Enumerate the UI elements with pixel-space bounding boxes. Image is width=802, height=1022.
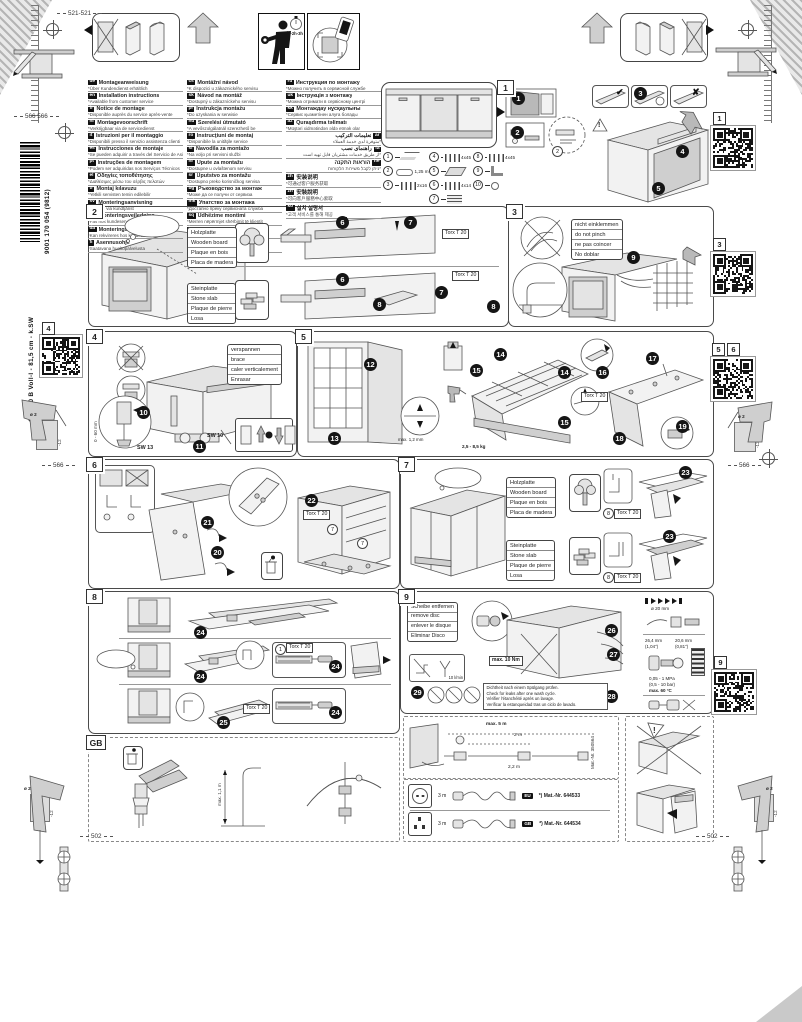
part-icon	[397, 152, 420, 163]
dim-right-mid: 566	[726, 462, 763, 469]
no-carry-by-door-illustration: !	[633, 722, 705, 778]
no-reuse-crossed-icons	[427, 685, 479, 705]
p9-drain-clamp-icon	[645, 613, 703, 631]
language-note: *Disponibile la unităţile service	[187, 139, 282, 144]
hardware-ref-circle: 8	[603, 508, 614, 519]
material-label: Wooden board	[188, 238, 236, 248]
parts-list-item: 7	[429, 192, 471, 206]
drill-tool-icon	[16, 396, 66, 458]
language-code-badge: sq	[187, 213, 196, 219]
door-panel-mount-illustration	[633, 779, 705, 837]
language-title: Montagevoorschrift	[97, 120, 147, 126]
brace-label: brace	[228, 355, 281, 365]
mount-post-icon	[50, 845, 80, 897]
flow-rate: 10 l/min	[449, 675, 463, 680]
step-circle: 24	[194, 670, 207, 683]
language-row: srUputstvo za montažu *Dostupno preko ko…	[187, 173, 282, 186]
panel1-kitchen-preview	[381, 82, 497, 148]
qr-label-3: 3	[713, 238, 726, 251]
p7-bracket-detail-bottom	[603, 532, 633, 570]
bricks-iconbox	[569, 537, 601, 575]
part-number: 9	[473, 166, 483, 176]
tree-iconbox	[235, 223, 269, 263]
language-code-badge: uk	[286, 93, 295, 99]
torx-label: Torx T 20	[614, 573, 641, 583]
language-row: zh安装说明 *可通过客户服务获取	[286, 173, 381, 188]
panel-number-6: 6	[86, 457, 103, 472]
qr-label-5: 5	[712, 343, 725, 356]
part-icon	[447, 195, 462, 204]
language-row: elΟδηγίες τοποθέτησης *Διαθέσιμες μέσω τ…	[88, 173, 183, 186]
language-code-badge: sr	[187, 173, 195, 179]
part-icon	[491, 166, 503, 176]
language-code-badge: pt	[88, 160, 96, 166]
language-row: zh安裝說明 *可向客戶服務中心索取	[286, 188, 381, 203]
part-number: 3	[383, 180, 393, 190]
p7-bracket-detail-top	[603, 468, 633, 506]
torx-label: Torx T 20	[452, 271, 479, 281]
part-number: 6	[429, 180, 439, 190]
panel-number-7: 7	[398, 457, 415, 472]
language-code-badge: hr	[187, 160, 195, 166]
language-code-badge: sk	[187, 93, 195, 99]
qr-label-9: 9	[714, 656, 727, 669]
region-badge: EU	[522, 793, 532, 800]
step-circle: 15	[470, 364, 483, 377]
coupling-dim-2-inch: (0,81")	[675, 644, 688, 649]
leader-line	[485, 157, 488, 158]
step-circle: 3	[634, 87, 647, 100]
hose-total-length: max. 5 m	[486, 722, 507, 727]
p5-gap-detail-circle	[400, 396, 440, 436]
material-label: Placa de madera	[507, 508, 555, 517]
cord-material-number: *) Mat.-Nr. 644533	[539, 793, 580, 799]
language-code-badge: tr	[88, 187, 94, 193]
language-note: *Über Kundendienst erhältlich	[88, 86, 183, 91]
part-spec: 4x45	[461, 155, 471, 160]
parts-list-item: 9	[473, 164, 515, 178]
step-circle: 8	[487, 300, 500, 313]
pointer-left-icon	[84, 25, 92, 35]
language-title: הוראות התקנה	[334, 160, 370, 166]
remove-disc-label-stack: Scheibe entfernenremove discenlever le d…	[407, 602, 458, 642]
socket-icon	[408, 784, 432, 808]
step-circle: 6	[336, 273, 349, 286]
drain-sequence-icon	[645, 597, 685, 605]
language-code-badge: it	[88, 133, 94, 139]
step-circle: 10	[137, 406, 150, 419]
dim-left-upper: 566 566	[12, 113, 61, 120]
parts-list-col2: 44x45564x147	[429, 150, 471, 206]
language-note: *Dostupne u ovlaštenom servisu	[187, 166, 282, 171]
wrench-size-13: SW 13	[137, 445, 153, 451]
torx-label: Torx T 20	[286, 643, 313, 653]
language-note: *Dostupný u zákazníckeho servisu	[187, 99, 282, 104]
panel-6: 6 21 20	[88, 459, 400, 589]
language-row: bgРъководство за монтаж *Може да се полу…	[187, 186, 282, 199]
gb-standpipe-illustration	[213, 756, 273, 830]
material-label: Plaque en bois	[507, 498, 555, 508]
language-code-badge: fa	[374, 147, 381, 153]
bricks-iconbox	[235, 280, 269, 320]
material-label: Stone slab	[188, 294, 235, 304]
language-row: hrUpute za montažu *Dostupne u ovlašteno…	[187, 159, 282, 172]
material-label: Stone slab	[507, 551, 554, 561]
language-row: azQuraşdırma təlimatı *Müştəri xidmətind…	[286, 119, 381, 132]
panel-cross-icons	[624, 17, 704, 57]
kitchen-cabinets-illustration	[385, 86, 493, 142]
language-row: huSzerelési útmutató *A vevőszolgálatnál…	[187, 119, 282, 132]
language-note: *متوفرة لدى خدمة العملاء	[286, 139, 381, 144]
language-note: *K dispozici u zákaznického servisu	[187, 86, 282, 91]
language-title: Quraşdırma təlimatı	[296, 120, 347, 126]
instruction-label: Scheibe entfernen	[408, 603, 457, 613]
language-note: *可通过客户服务获取	[286, 181, 381, 186]
language-note: *Müştəri xidmətindən əldə etmək olar	[286, 126, 381, 131]
tree-icon	[239, 226, 265, 258]
panel-number-4: 4	[86, 329, 103, 344]
parts-list-item: 10	[473, 178, 515, 192]
registration-mark-icon	[762, 452, 775, 465]
language-note: *A vevőszolgálatnál szerezhető be	[187, 126, 282, 131]
language-code-badge: az	[286, 120, 294, 126]
qr-label-4: 4	[42, 322, 55, 335]
aquastop-valve-icon	[645, 650, 685, 674]
language-row: frNotice de montage *Disponible auprès d…	[88, 106, 183, 119]
language-row: mkУпатство за монтажа *Достапно преку се…	[187, 199, 282, 212]
step-circle: 14	[558, 366, 571, 379]
language-title: Szerelési útmutató	[198, 120, 246, 126]
language-row: roInstrucţiuni de montaj *Disponibile la…	[187, 132, 282, 145]
panel-number-3: 3	[506, 204, 523, 219]
coupling-dim-1-inch: (1,04")	[645, 644, 658, 649]
cord-row: 3 m GB *) Mat.-Nr. 644534	[408, 810, 614, 838]
p2-bracket-bottom-illustration	[275, 269, 440, 321]
step-circle: 13	[328, 432, 341, 445]
material-label: Losa	[188, 314, 235, 323]
stone-label-stack: SteinplatteStone slabPlaque de pierreLos…	[187, 283, 236, 324]
installation-sheet-page: 521-521 ~2h-3h	[0, 0, 802, 1022]
language-code-badge: cs	[187, 80, 195, 86]
stopwatch-icon	[289, 15, 303, 31]
dim-left-mid: 566	[40, 462, 77, 469]
drill-diameter: ø 2	[30, 412, 37, 417]
order-number: 9001 170 054 (9812)	[44, 142, 51, 254]
leader-line	[485, 171, 490, 172]
part-icon	[444, 167, 466, 176]
step-circle: 25	[217, 716, 230, 729]
language-note: *از طریق خدمات مشتریان قابل تهیه است	[286, 152, 381, 157]
language-code-badge: el	[88, 173, 95, 179]
panel-9: 9 Scheibe entfernenremove discenlever le…	[400, 591, 714, 714]
language-row: slNavodila za montažo *Na voljo pri serv…	[187, 146, 282, 159]
language-row: faراهنمای نصب *از طریق خدمات مشتریان قاب…	[286, 146, 381, 159]
language-column-3: ruИнструкция по монтажу *Можно получить …	[286, 79, 381, 219]
page-curl	[756, 986, 802, 1022]
qr-code-9	[712, 670, 756, 714]
cord-row: 3 m EU *) Mat.-Nr. 644533	[408, 782, 614, 810]
phone-scan-icon	[310, 16, 357, 67]
language-note: *Можно получить в сервисной службе	[286, 86, 381, 91]
warning-exclamation: !	[598, 122, 600, 129]
language-row: kkМонтаждау нұсқаулығы *Сервис қызметіне…	[286, 106, 381, 119]
leak-check-warning: Dichtheit nach einem Spülgang prüfen.Che…	[483, 683, 608, 710]
coupling-dim-1: 26,4 mm	[645, 638, 662, 643]
pressure-spec-bar: (0,5 - 10 bar)	[649, 682, 675, 687]
parts-list-item: 5	[429, 164, 471, 178]
drill-diameter: ø 2	[738, 414, 745, 419]
drain-diameter: ø 20 mm	[651, 606, 669, 611]
question-cloud: ?	[123, 213, 181, 241]
hose-bottom-length: 2,2 m	[508, 765, 520, 770]
pointer-icon	[497, 107, 505, 117]
step-circle: 7	[435, 286, 448, 299]
part-number: 8	[473, 152, 483, 162]
brace-label-stack: verspannenbracecaler verticalementEnrasa…	[227, 344, 282, 385]
language-note: *Може да се получи от сервиза	[187, 192, 282, 197]
instruction-label: Eliminar Disco	[408, 632, 457, 641]
divider	[410, 810, 610, 811]
step-circle: 23	[679, 466, 692, 479]
step-circle: 17	[646, 352, 659, 365]
part-icon	[489, 154, 504, 162]
panel-4: 4 verspannenbracecaler verticalementEnra…	[88, 331, 297, 457]
language-code-badge: nl	[88, 120, 95, 126]
door-balance-pictogram	[235, 418, 293, 452]
step-circle: 20	[211, 546, 224, 559]
socket-icon	[408, 812, 432, 836]
language-code-badge: zh	[286, 174, 294, 180]
step-circle: 2	[511, 126, 524, 139]
dim-top-left: 521-521	[55, 10, 104, 17]
material-label: Steinplatte	[188, 284, 235, 294]
step-circle: 16	[596, 366, 609, 379]
step-circle: 5	[652, 182, 665, 195]
qr-code-1	[711, 126, 755, 170]
language-code-badge: he	[372, 160, 381, 166]
language-row: itIstruzioni per il montaggio *Disponibi…	[88, 132, 183, 145]
language-row: ko설치 설명서 *고객 서비스를 통해 제공	[286, 203, 381, 218]
parts-list-item: 44x45	[429, 150, 471, 164]
step-circle: 24	[194, 626, 207, 639]
torx-label: Torx T 20	[303, 510, 330, 520]
panel-number-9: 9	[398, 589, 415, 604]
qr-code-4	[40, 335, 82, 377]
cord-length: 3 m	[438, 821, 446, 827]
panel-number-5: 5	[295, 329, 312, 344]
torx-label: Torx T 20	[581, 392, 608, 402]
leader-line	[395, 157, 400, 158]
language-row: fiAsennusohje *Saatavana huoltopalvelust…	[88, 239, 183, 252]
power-cord-icon	[452, 786, 516, 806]
part-icon	[396, 169, 413, 176]
language-row: ruИнструкция по монтажу *Можно получить …	[286, 79, 381, 92]
p1-mini-wrong	[670, 85, 707, 108]
p8-clip-detail-circle	[235, 640, 265, 670]
language-note: *Διαθέσιμες μέσω του σέρβις πελατών	[88, 179, 183, 184]
language-note: *Disponibili presso il servizio assisten…	[88, 139, 183, 144]
language-row: enInstallation instructions *Available f…	[88, 92, 183, 105]
step-circle: 18	[613, 432, 626, 445]
panel-number-1: 1	[497, 80, 514, 95]
part-number: 4	[429, 152, 439, 162]
panel-number-2: 2	[86, 204, 103, 219]
warning-line: Verificar la estanqueidad tras un ciclo …	[487, 702, 605, 708]
parts-list-col1: 121,25 m32x16	[383, 150, 427, 192]
language-row: ukІнструкція з монтажу *Можна отримати в…	[286, 92, 381, 105]
pressure-scale-icon	[691, 648, 705, 676]
language-code-badge: es	[88, 147, 96, 153]
instruction-label: enlever le disque	[408, 622, 457, 632]
language-note: *Na voljo pri servisni službi	[187, 152, 282, 157]
step-circle: 21	[201, 516, 214, 529]
registration-mark-icon	[46, 23, 59, 36]
step-circle: 14	[494, 348, 507, 361]
torx-label: Torx T 20	[442, 229, 469, 239]
hardware-ref-circle: 1	[275, 644, 286, 655]
trash-iconbox	[261, 552, 283, 580]
svg-text:!: !	[653, 726, 656, 735]
p8-door-bottom-corner	[347, 640, 393, 682]
language-row: heהוראות התקנה *ניתן לקבל משירות הלקוחות	[286, 159, 381, 172]
language-note: *Disponible auprès du service après-vent…	[88, 112, 183, 117]
brace-label: verspannen	[228, 345, 281, 355]
hose-mid-length: 2 m	[514, 733, 522, 738]
language-note: *Podem ser adquiridas nos Serviços Técni…	[88, 166, 183, 171]
p8-cabinet-variant	[127, 688, 171, 726]
leader-line	[441, 185, 444, 186]
language-code-badge: mk	[187, 200, 197, 206]
step-circle: 6	[336, 216, 349, 229]
language-code-badge: ar	[373, 133, 381, 139]
part-number: 5	[429, 166, 439, 176]
no-side-panel-box	[620, 13, 708, 62]
language-code-badge: da	[88, 227, 97, 233]
no-pinch-label-stack: nicht einklemmendo not pinchne pas coinc…	[571, 219, 623, 260]
part-icon	[401, 182, 416, 190]
question-cloud: ?	[95, 648, 137, 672]
material-label: Plaque en bois	[188, 248, 236, 258]
part-number: 2	[383, 166, 393, 176]
language-code-badge: bg	[187, 187, 196, 193]
step-circle: 12	[364, 358, 377, 371]
parts-list-item: 64x14	[429, 178, 471, 192]
p7-counter-fix-top	[637, 468, 709, 520]
hardware-ref-circle: 7	[357, 538, 368, 549]
language-title: 安裝說明	[296, 188, 318, 196]
material-label: Steinplatte	[507, 541, 554, 551]
pointer-right-icon	[706, 25, 714, 35]
mount-post-icon	[722, 845, 752, 897]
check-icon: ✔	[616, 87, 624, 98]
dim-bottom-left: 502	[78, 833, 115, 840]
language-title: 설치 설명서	[297, 204, 323, 212]
step-circle: 19	[676, 420, 689, 433]
language-title: Monteringsanvisning	[98, 200, 152, 206]
divider	[643, 634, 705, 635]
part-icon	[445, 182, 460, 190]
panel-gb: GB max. 1,1 m	[88, 737, 400, 842]
part-spec: 4x45	[505, 155, 515, 160]
wood-label-stack: HolzplatteWooden boardPlaque en boisPlac…	[187, 227, 237, 268]
language-row: deMontageanweisung *Über Kundendienst er…	[88, 79, 183, 92]
warning-label: ne pas coincer	[572, 240, 622, 250]
language-title: Instruções de montagem	[98, 160, 162, 166]
panel-3: 3 nicht einklemmendo not pinchne pas coi…	[508, 206, 714, 327]
hardware-ref-circle: 7	[327, 524, 338, 535]
material-label: Placa de madera	[188, 258, 236, 267]
language-note: *고객 서비스를 통해 제공	[286, 212, 381, 217]
qr-code-3	[711, 252, 755, 296]
qr-label-6: 6	[727, 343, 740, 356]
dim-bottom-right: 502	[694, 833, 731, 840]
language-row: ptInstruções de montagem *Podem ser adqu…	[88, 159, 183, 172]
language-row: esInstrucciones de montaje *Se pueden ad…	[88, 146, 183, 159]
language-row: skNávod na montáž *Dostupný u zákaznícke…	[187, 92, 282, 105]
parts-list-col3: 84x45910	[473, 150, 515, 192]
tree-iconbox	[569, 474, 601, 512]
no-adapter-plug-icon	[647, 698, 699, 712]
bricks-icon	[573, 542, 597, 570]
divider	[119, 684, 391, 685]
language-code-badge: ro	[187, 133, 195, 139]
part-number: 7	[429, 194, 439, 204]
language-code-badge: en	[88, 93, 97, 99]
part-icon	[445, 154, 460, 162]
part-spec: 1,25 m	[415, 169, 429, 174]
language-note: *Verkrijgbaar via de servicedienst	[88, 126, 183, 131]
parts-list-item: 32x16	[383, 178, 427, 192]
language-note: *Do uzyskania w serwisie	[187, 112, 282, 117]
step-circle: 29	[411, 686, 424, 699]
cross-icon: ✘	[692, 87, 700, 98]
language-code-badge: fr	[88, 107, 94, 113]
leader-line	[441, 199, 446, 200]
drill-diameter: ø 2	[766, 786, 773, 791]
countertop-pencil-icon	[12, 42, 78, 80]
language-code-badge: de	[88, 80, 97, 86]
leader-line	[485, 185, 490, 186]
p4-foot-detail-circle	[97, 394, 153, 450]
trash-icon	[264, 555, 278, 575]
drill-diameter: ø 2	[24, 786, 31, 791]
language-code-badge: hu	[187, 120, 196, 126]
material-label: Plaque de pierre	[507, 561, 554, 571]
material-label: Holzplatte	[507, 478, 555, 488]
parts-list-item: 84x45	[473, 150, 515, 164]
warning-label: do not pinch	[572, 230, 622, 240]
time-estimate: ~2h-3h	[289, 31, 303, 36]
language-code-badge: ko	[286, 205, 295, 211]
step-circle: 23	[663, 530, 676, 543]
language-row: csMontážní návod *K dispozici u zákaznic…	[187, 79, 282, 92]
registration-mark-icon	[58, 126, 71, 139]
part-number: 1	[383, 152, 393, 162]
panel-hose-extension: max. 5 m 2 m 2,2 m Mat.-Nr. 350564	[403, 716, 619, 779]
language-note: *Можна отримати в сервісному центрі	[286, 99, 381, 104]
step-circle: 24	[329, 660, 342, 673]
step-circle: 9	[627, 251, 640, 264]
barcode	[20, 142, 40, 242]
step-circle: 27	[607, 648, 620, 661]
hardware-ref-circle: 2	[552, 146, 563, 157]
brace-label: caler verticalement	[228, 365, 281, 375]
panel-2: 2 ? HolzplatteWooden boardPlaque en bois…	[88, 206, 509, 327]
step-circle: 8	[373, 298, 386, 311]
p3-hose-detail-circle	[511, 261, 569, 319]
leader-line	[395, 185, 400, 186]
leader-line	[441, 157, 444, 158]
